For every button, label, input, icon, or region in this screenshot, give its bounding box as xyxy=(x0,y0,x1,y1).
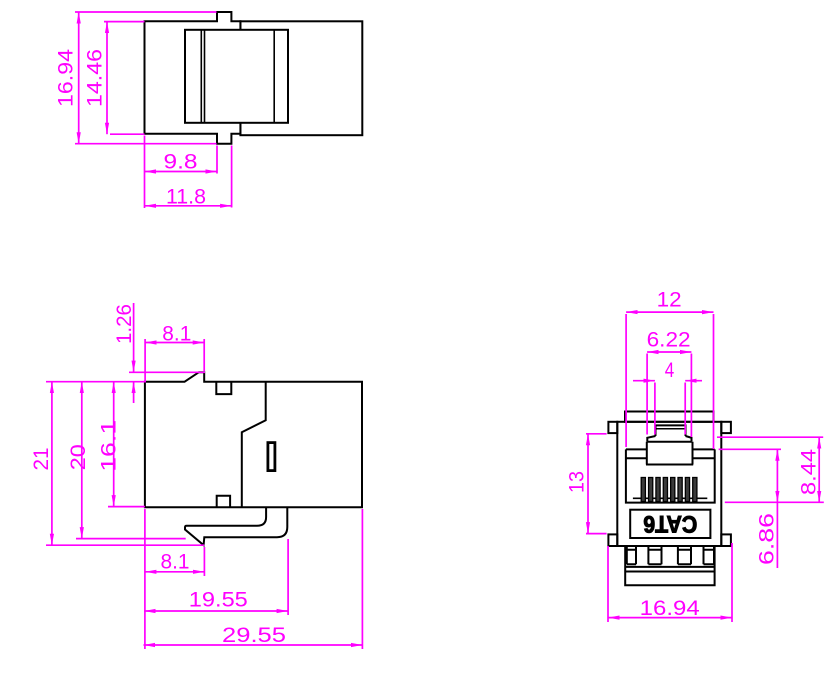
svg-text:4: 4 xyxy=(665,359,675,382)
svg-text:16.1: 16.1 xyxy=(97,420,120,472)
svg-text:6.86: 6.86 xyxy=(755,513,778,565)
svg-text:1.26: 1.26 xyxy=(113,304,136,344)
svg-text:20: 20 xyxy=(67,444,90,470)
svg-text:29.55: 29.55 xyxy=(222,624,286,647)
svg-text:11.8: 11.8 xyxy=(166,186,206,209)
svg-text:16.94: 16.94 xyxy=(55,49,78,107)
svg-text:8.1: 8.1 xyxy=(161,551,190,574)
svg-text:13: 13 xyxy=(566,471,589,493)
svg-text:19.55: 19.55 xyxy=(189,588,248,611)
svg-text:9.8: 9.8 xyxy=(164,151,198,174)
svg-text:14.46: 14.46 xyxy=(84,49,107,107)
svg-text:CAT6: CAT6 xyxy=(643,510,697,537)
svg-text:16.94: 16.94 xyxy=(640,597,700,620)
svg-text:21: 21 xyxy=(30,448,53,471)
svg-text:8.44: 8.44 xyxy=(797,449,820,495)
svg-text:8.1: 8.1 xyxy=(162,322,191,345)
svg-text:6.22: 6.22 xyxy=(647,328,691,351)
svg-text:12: 12 xyxy=(657,289,682,312)
